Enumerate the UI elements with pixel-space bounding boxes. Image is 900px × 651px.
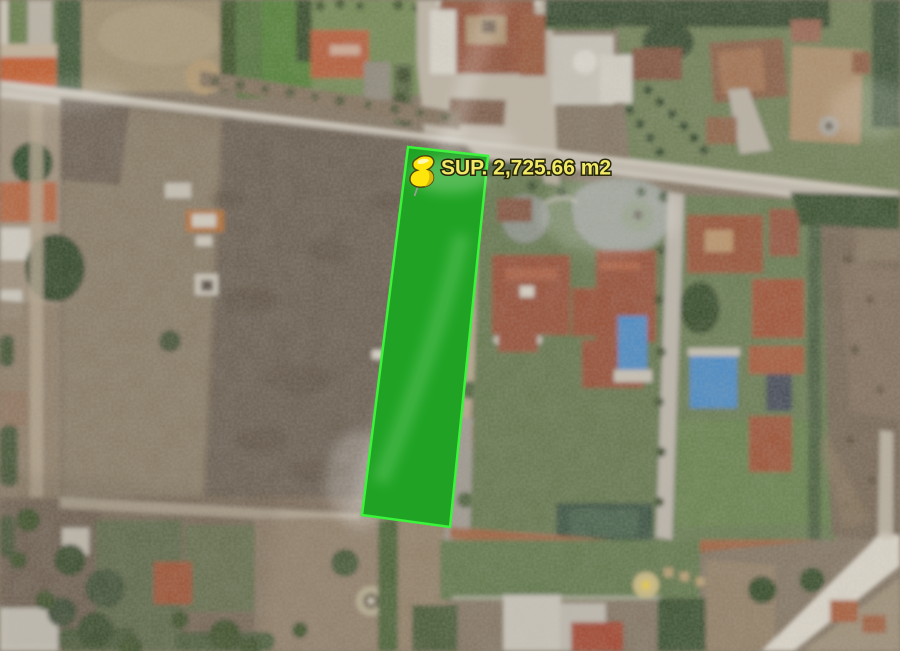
svg-text:SUP. 2,725.66 m2: SUP. 2,725.66 m2 — [441, 157, 611, 180]
